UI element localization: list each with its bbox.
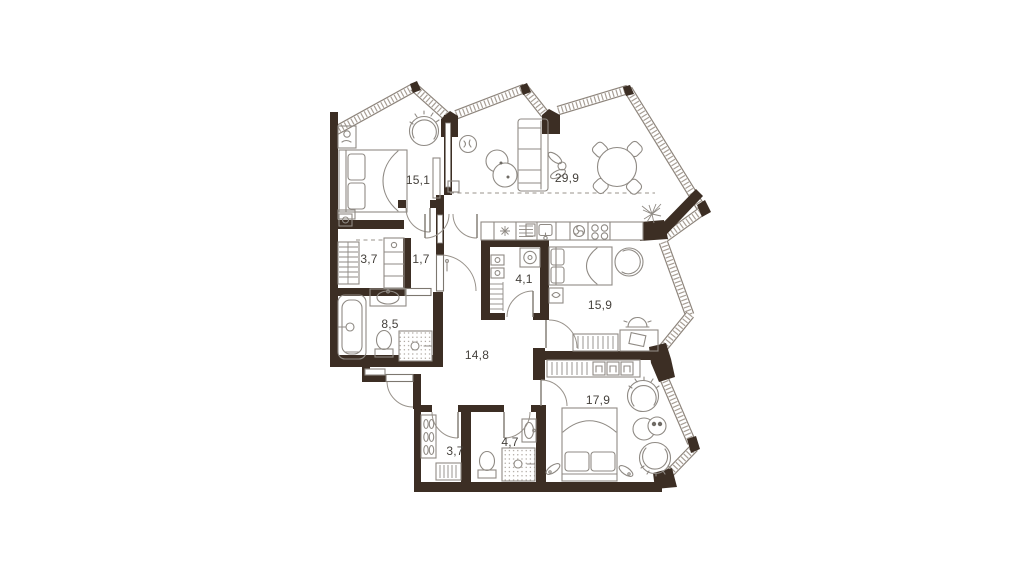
dining-table-icon <box>598 148 637 187</box>
room-label-hall: 1,7 <box>412 252 429 266</box>
boiler-icon <box>491 268 504 278</box>
side-table-icon <box>648 417 666 435</box>
faucet-icon <box>346 323 354 331</box>
pouf-icon <box>493 163 517 187</box>
drawers-icon <box>384 238 404 288</box>
door-hall <box>437 255 444 291</box>
drawer-icon <box>621 362 633 375</box>
desk-chair-icon <box>628 318 647 328</box>
room-label-bathroom1: 8,5 <box>381 317 398 331</box>
drawer-icon <box>607 362 619 375</box>
lamp-icon <box>344 131 350 137</box>
plant-icon <box>642 204 661 223</box>
room-label-wardrobe1: 3,7 <box>360 252 377 266</box>
floor-plan-canvas: 15,1 29,9 3,7 1,7 4,1 15,9 8,5 14,8 17,9… <box>0 0 1024 576</box>
bed-icon <box>339 150 407 212</box>
entry-door <box>386 375 413 382</box>
hanging-rail-icon <box>436 463 461 480</box>
kitchen-counter <box>481 222 643 240</box>
armchair-icon <box>615 248 643 276</box>
bathroom2-furniture <box>478 419 536 481</box>
bedroom3-wardrobe <box>547 360 640 377</box>
room-label-bedroom3: 17,9 <box>586 393 610 407</box>
nightstand-icon <box>549 288 563 303</box>
toilet-icon <box>478 470 496 478</box>
room-label-bedroom2: 15,9 <box>588 298 612 312</box>
room-label-wardrobe2: 3,7 <box>446 444 463 458</box>
slipper-icon <box>544 462 561 477</box>
shelves-icon <box>338 242 359 284</box>
drawer-icon <box>593 362 605 375</box>
slipper-icon <box>617 464 634 479</box>
room-label-bedroom1: 15,1 <box>406 173 430 187</box>
entry-threshold <box>365 369 385 375</box>
bed-icon <box>549 247 612 285</box>
laptop-icon <box>629 333 646 347</box>
room-label-living: 29,9 <box>555 171 579 185</box>
bed-icon <box>562 408 617 481</box>
console-icon <box>433 158 440 198</box>
plant-pot-icon <box>460 136 477 153</box>
boiler-icon <box>491 255 504 265</box>
wardrobe-icon <box>573 334 618 351</box>
room-label-corridor: 14,8 <box>465 348 489 362</box>
room-label-utility: 4,1 <box>515 272 532 286</box>
door-bathroom1 <box>405 289 431 296</box>
plant-leaf-icon <box>547 150 564 165</box>
room-label-bathroom2: 4,7 <box>501 435 518 449</box>
shelves-icon <box>490 282 503 311</box>
fridge-icon <box>500 226 510 236</box>
armchair-icon <box>410 117 439 146</box>
